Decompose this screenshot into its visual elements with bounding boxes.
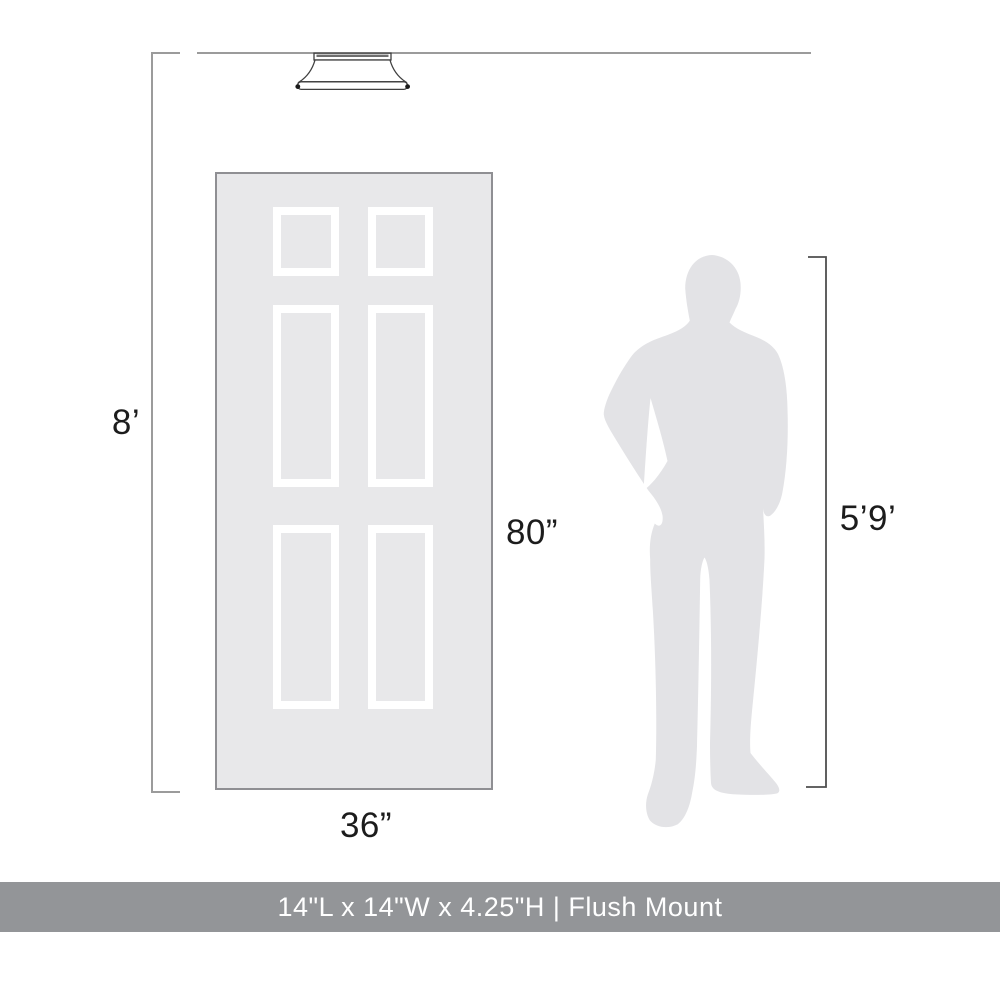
door-figure: [215, 172, 493, 790]
label-door-height: 80”: [487, 513, 577, 553]
label-ceiling-height: 8’: [81, 403, 171, 443]
door-panel: [368, 305, 433, 487]
door-panel: [368, 525, 433, 709]
label-door-width: 36”: [321, 806, 411, 846]
spec-banner: 14"L x 14"W x 4.25"H | Flush Mount: [0, 882, 1000, 932]
door-panel: [368, 207, 433, 276]
label-person-height: 5’9’: [823, 499, 913, 539]
flush-mount-light-icon: [295, 53, 410, 89]
door-panel: [273, 305, 339, 487]
man-silhouette: [604, 255, 788, 827]
size-comparison-diagram: 8’ 80” 36” 5’9’ 14"L x 14"W x 4.25"H | F…: [0, 0, 1000, 1000]
door-panel: [273, 525, 339, 709]
door-panel: [273, 207, 339, 276]
spec-banner-text: 14"L x 14"W x 4.25"H | Flush Mount: [278, 892, 723, 923]
